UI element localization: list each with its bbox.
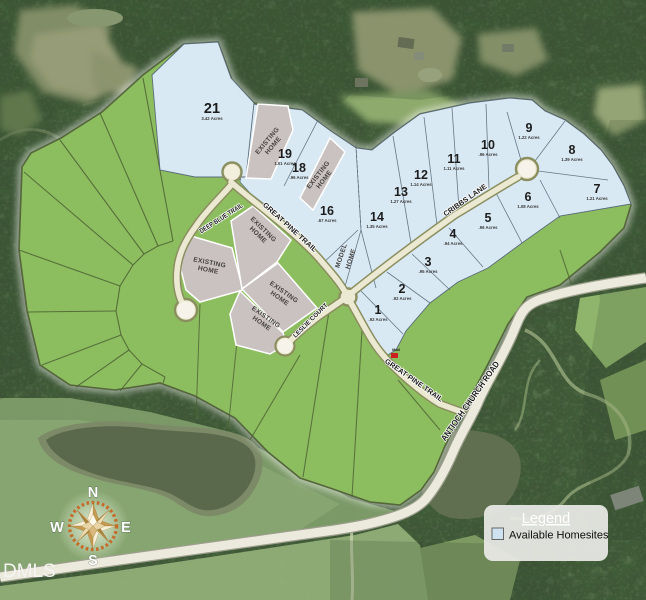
svg-text:1.22 Acres: 1.22 Acres — [518, 135, 540, 140]
svg-text:18: 18 — [292, 161, 306, 175]
svg-text:1.27 Acres: 1.27 Acres — [390, 199, 412, 204]
svg-text:.95 Acres: .95 Acres — [419, 269, 439, 274]
svg-text:.94 Acres: .94 Acres — [444, 241, 464, 246]
svg-text:1.14 Acres: 1.14 Acres — [410, 182, 432, 187]
svg-text:6: 6 — [525, 190, 532, 204]
svg-text:1: 1 — [375, 303, 382, 317]
svg-text:.96 Acres: .96 Acres — [290, 175, 310, 180]
svg-text:19: 19 — [278, 147, 292, 161]
svg-text:.96 Acres: .96 Acres — [479, 225, 499, 230]
svg-text:.92 Acres: .92 Acres — [369, 317, 389, 322]
svg-text:1.21 Acres: 1.21 Acres — [586, 196, 608, 201]
svg-text:21: 21 — [204, 101, 220, 117]
svg-text:N: N — [88, 485, 98, 501]
svg-text:14: 14 — [370, 210, 384, 224]
svg-text:2: 2 — [399, 282, 406, 296]
svg-text:1.11 Acres: 1.11 Acres — [443, 166, 465, 171]
svg-text:.92 Acres: .92 Acres — [393, 296, 413, 301]
svg-text:DMLS: DMLS — [3, 561, 56, 582]
svg-text:16: 16 — [320, 204, 334, 218]
svg-text:3: 3 — [425, 255, 432, 269]
svg-text:1.08 Acres: 1.08 Acres — [517, 204, 539, 209]
svg-text:S: S — [88, 553, 98, 569]
svg-text:.96 Acres: .96 Acres — [479, 152, 499, 157]
svg-text:1.35 Acres: 1.35 Acres — [366, 224, 388, 229]
svg-text:1.39 Acres: 1.39 Acres — [561, 157, 583, 162]
svg-text:Legend: Legend — [522, 511, 570, 527]
svg-text:3.42 Acres: 3.42 Acres — [201, 116, 223, 121]
svg-text:Mail: Mail — [392, 347, 400, 352]
svg-text:11: 11 — [447, 152, 460, 166]
svg-text:13: 13 — [394, 185, 408, 199]
svg-text:.67 Acres: .67 Acres — [318, 218, 338, 223]
svg-text:E: E — [121, 520, 131, 536]
svg-text:W: W — [50, 520, 64, 536]
svg-text:Available Homesites: Available Homesites — [509, 530, 609, 542]
svg-text:10: 10 — [481, 138, 495, 152]
svg-text:12: 12 — [414, 168, 428, 182]
svg-text:8: 8 — [569, 143, 576, 157]
svg-text:9: 9 — [526, 121, 533, 135]
svg-text:4: 4 — [450, 227, 457, 241]
svg-text:7: 7 — [594, 182, 601, 196]
svg-text:5: 5 — [485, 211, 492, 225]
